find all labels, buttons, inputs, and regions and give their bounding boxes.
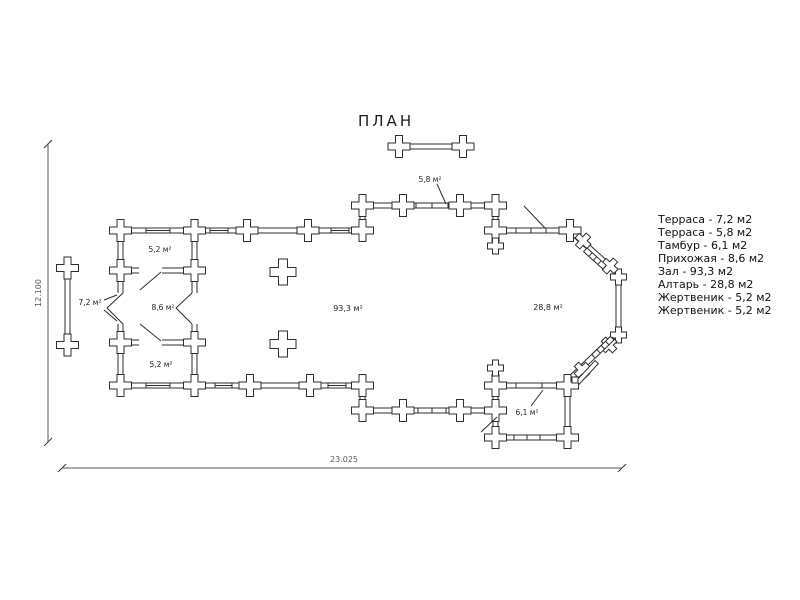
doors: [107, 206, 598, 432]
window: [514, 435, 540, 440]
floor-plan-page: ПЛАН: [0, 0, 800, 600]
window: [328, 383, 346, 388]
window: [146, 383, 170, 388]
legend-item: Прихожая - 8,6 м2: [658, 252, 772, 265]
room-label-terrace-left: 7,2 м²: [79, 298, 102, 307]
log-columns: [270, 259, 296, 357]
dimension-height: 12.100: [34, 279, 43, 307]
dimension-width: 23.025: [330, 455, 358, 464]
room-label-vestibule: 8,6 м²: [152, 303, 175, 312]
legend-item: Тамбур - 6,1 м2: [658, 239, 772, 252]
room-label-terrace-top: 5,8 м²: [419, 175, 442, 184]
door-leaf-altar: [524, 206, 545, 228]
legend-item: Зал - 93,3 м2: [658, 265, 772, 278]
window: [331, 228, 349, 233]
log-notches: [57, 136, 627, 449]
door-leaf-bottom: [140, 324, 161, 341]
legend-item: Жертвеник - 5,2 м2: [658, 304, 772, 317]
room-labels: 5,2 м² 8,6 м² 5,2 м² 93,3 м² 28,8 м² 7,2…: [79, 175, 563, 417]
window: [416, 203, 448, 208]
entrance-door-jamb: [572, 377, 578, 383]
window: [146, 228, 170, 233]
room-legend: Терраса - 7,2 м2 Терраса - 5,8 м2 Тамбур…: [658, 213, 772, 317]
door-leaf-top: [140, 272, 161, 290]
door-opening: [516, 383, 542, 388]
legend-item: Алтарь - 28,8 м2: [658, 278, 772, 291]
legend-item: Жертвеник - 5,2 м2: [658, 291, 772, 304]
room-label-sanctuary-top: 5,2 м²: [149, 245, 172, 254]
room-label-sanctuary-bottom: 5,2 м²: [150, 360, 173, 369]
door-swing-hall: [176, 293, 192, 324]
windows: [146, 203, 614, 440]
room-label-hall: 93,3 м²: [333, 304, 363, 313]
leader-lines: [104, 184, 543, 406]
room-label-altar: 28,8 м²: [533, 303, 563, 312]
window: [418, 408, 446, 413]
room-label-tambour: 6,1 м²: [516, 408, 539, 417]
window: [210, 228, 228, 233]
window: [215, 383, 232, 388]
window: [516, 228, 546, 233]
legend-item: Терраса - 5,8 м2: [658, 226, 772, 239]
legend-item: Терраса - 7,2 м2: [658, 213, 772, 226]
